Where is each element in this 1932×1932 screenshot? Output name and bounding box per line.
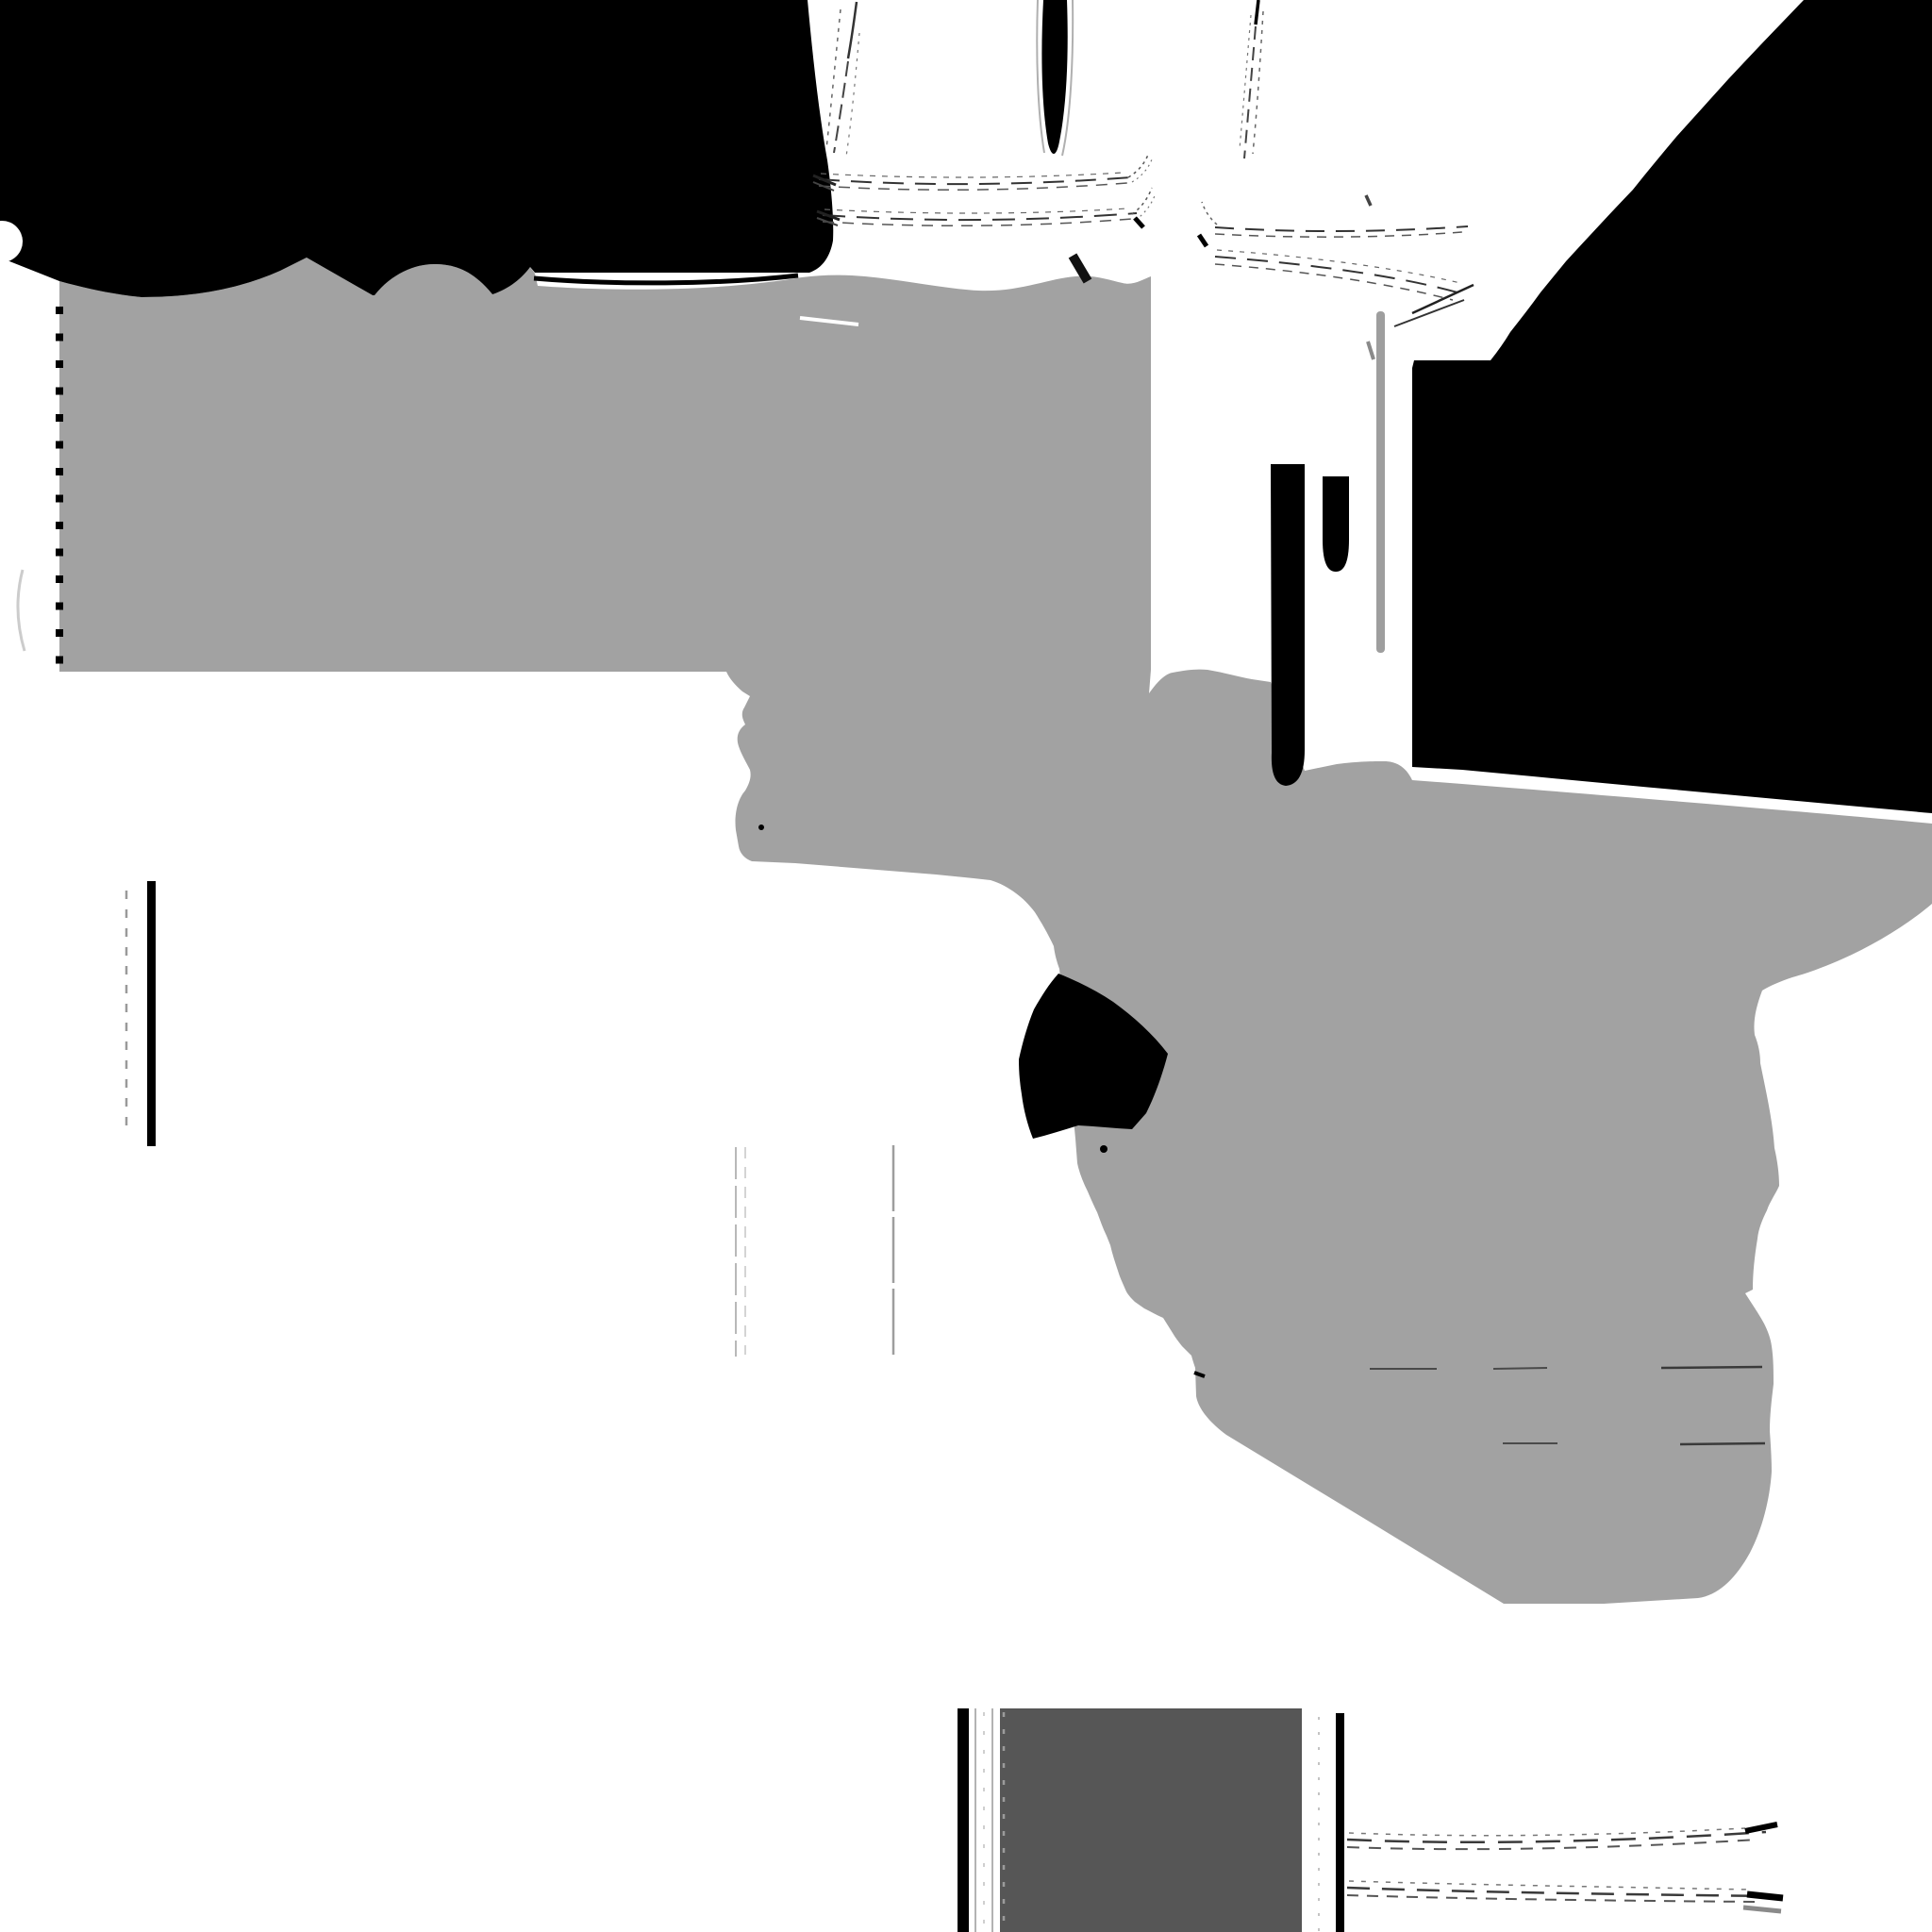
road-edge-black-right — [1336, 1713, 1344, 1932]
posterized-aerial-scene — [0, 0, 1932, 1932]
road-edge-black-left — [958, 1708, 969, 1932]
field-dash-r2-b — [1680, 1443, 1765, 1444]
field-dash-r1-c — [1661, 1367, 1762, 1368]
dot-small-b — [1100, 1145, 1108, 1153]
field-dash-r1-b — [1493, 1368, 1547, 1369]
dark-strip-short — [1323, 476, 1349, 572]
dot-small-a — [758, 824, 764, 830]
left-solid-line — [147, 881, 156, 1146]
lane-dashes-br-row2-end — [1747, 1894, 1783, 1898]
road-asphalt — [1000, 1708, 1302, 1932]
dark-strip-long — [1271, 464, 1305, 786]
gray-divider-line-right — [1376, 311, 1385, 653]
shadow-mass-top-left — [0, 0, 833, 297]
scene-canvas — [0, 0, 1932, 1932]
